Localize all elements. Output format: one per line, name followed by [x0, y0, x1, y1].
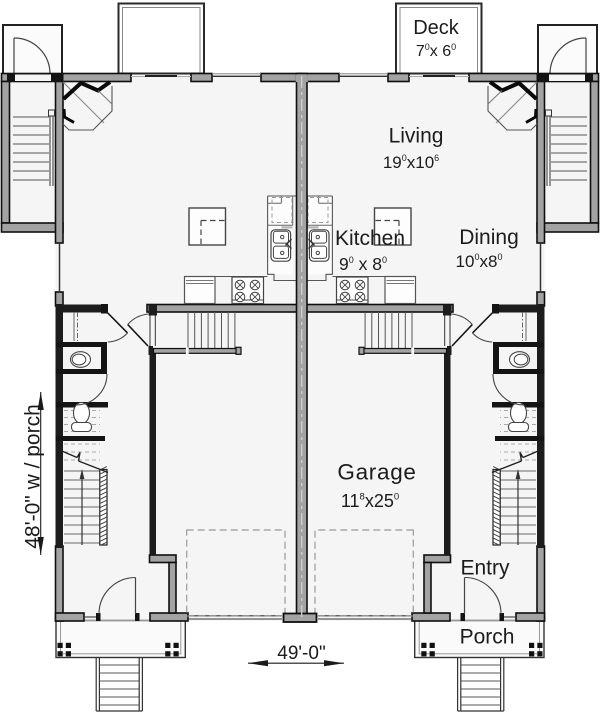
svg-text:Entry: Entry: [460, 557, 510, 580]
svg-text:118x250: 118x250: [341, 491, 399, 511]
svg-text:190x106: 190x106: [383, 153, 439, 172]
svg-text:90 x 80: 90 x 80: [339, 254, 387, 274]
svg-text:Garage: Garage: [337, 460, 416, 485]
svg-text:Porch: Porch: [460, 626, 515, 649]
svg-text:100x80: 100x80: [456, 252, 503, 271]
svg-text:Living: Living: [389, 125, 444, 148]
svg-text:Kitchen: Kitchen: [335, 227, 405, 250]
svg-text:Dining: Dining: [459, 226, 519, 249]
svg-text:70x 60: 70x 60: [416, 42, 456, 60]
svg-text:49'-0": 49'-0": [277, 643, 325, 664]
svg-text:Deck: Deck: [413, 17, 460, 39]
